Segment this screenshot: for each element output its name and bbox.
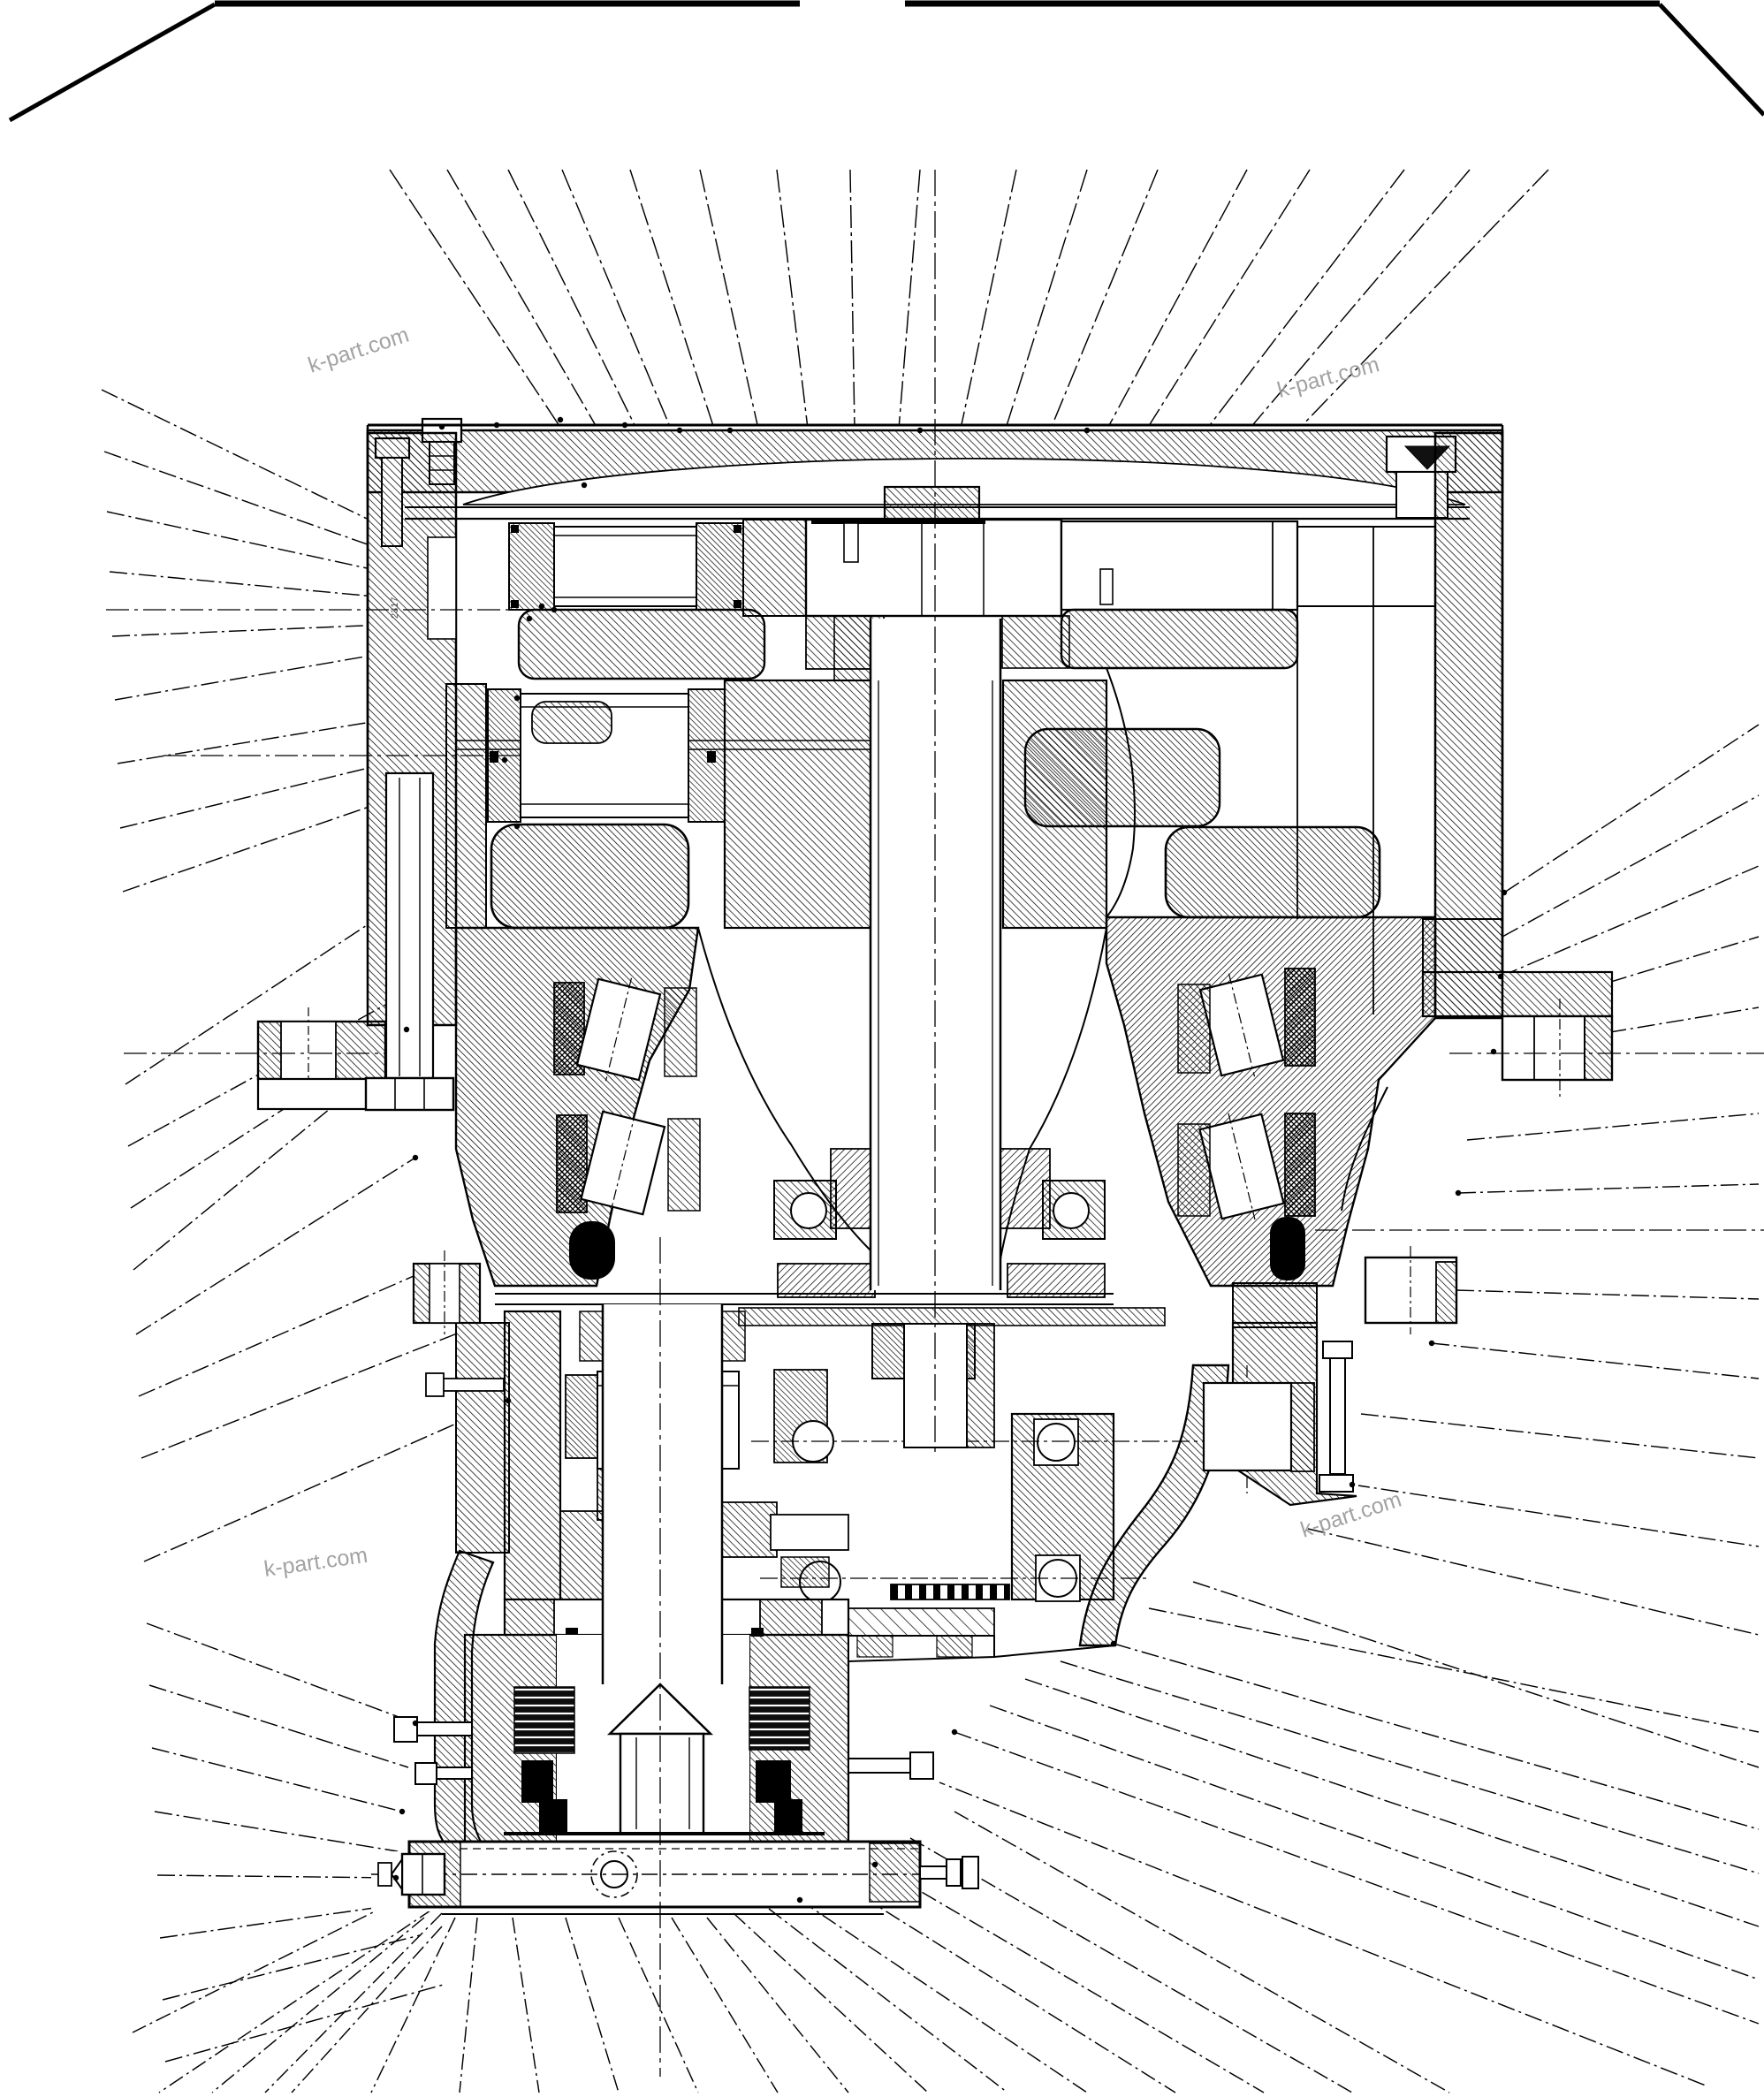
svg-text:2317: 2317 [390, 597, 400, 619]
